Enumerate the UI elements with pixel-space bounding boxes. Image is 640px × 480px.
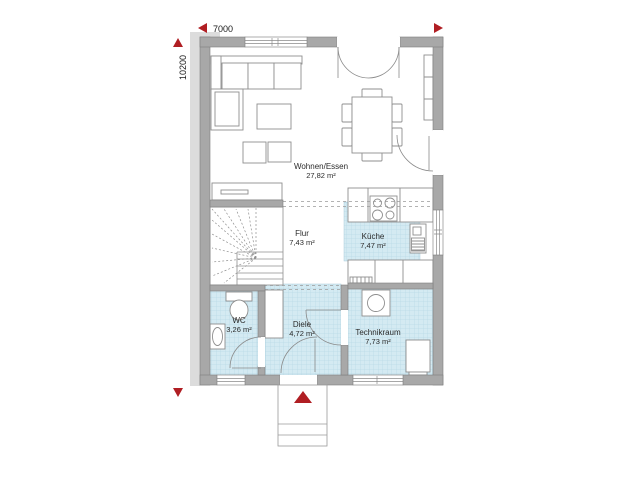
room-label-wohnen-essen: Wohnen/Essen 27,82 m² [294,162,348,180]
window-living-icon [245,37,307,47]
dim-arrow-up-icon [173,38,183,47]
sideboard-icon [212,183,282,200]
svg-text:Küche: Küche [362,232,385,241]
french-door-icon [338,47,399,78]
stove-icon [370,196,397,221]
room-label-flur: Flur 7,43 m² [289,229,315,247]
svg-text:7,43 m²: 7,43 m² [289,238,315,247]
svg-text:Diele: Diele [293,320,312,329]
washing-machine-icon [362,290,390,316]
window-technikraum-icon [353,375,403,385]
sink-icon [410,224,426,253]
floor-plan: 7000 10200 Wohnen/Essen 27,82 m² Flur 7,… [0,0,640,480]
wardrobe-icon [265,290,283,338]
svg-text:27,82 m²: 27,82 m² [306,171,336,180]
svg-text:Wohnen/Essen: Wohnen/Essen [294,162,348,171]
dining-set-icon [342,89,402,161]
svg-text:7,47 m²: 7,47 m² [360,241,386,250]
tall-cabinet-icon [424,55,433,120]
dimension-height-label: 10200 [178,55,188,80]
svg-text:WC: WC [232,316,246,325]
kitchen-base-cabinets-icon [348,260,433,284]
dim-arrow-down-icon [173,388,183,397]
dimension-width-label: 7000 [213,24,233,34]
coffee-table-icon [257,104,291,129]
svg-text:3,26 m²: 3,26 m² [226,325,252,334]
staircase [210,207,283,285]
svg-text:Flur: Flur [295,229,309,238]
side-table-icon [243,142,266,163]
window-wc-icon [217,375,245,385]
side-table-icon [268,142,291,162]
heating-unit-icon [406,340,430,375]
dim-arrow-left-icon [198,23,207,33]
svg-text:Technikraum: Technikraum [355,328,401,337]
room-label-kueche: Küche 7,47 m² [360,232,386,250]
washbasin-icon [210,324,225,349]
dim-arrow-right-icon [434,23,443,33]
svg-text:4,72 m²: 4,72 m² [289,329,315,338]
window-kitchen-icon [433,210,443,255]
floor-plan-page: 7000 10200 Wohnen/Essen 27,82 m² Flur 7,… [0,0,640,480]
svg-text:7,73 m²: 7,73 m² [365,337,391,346]
